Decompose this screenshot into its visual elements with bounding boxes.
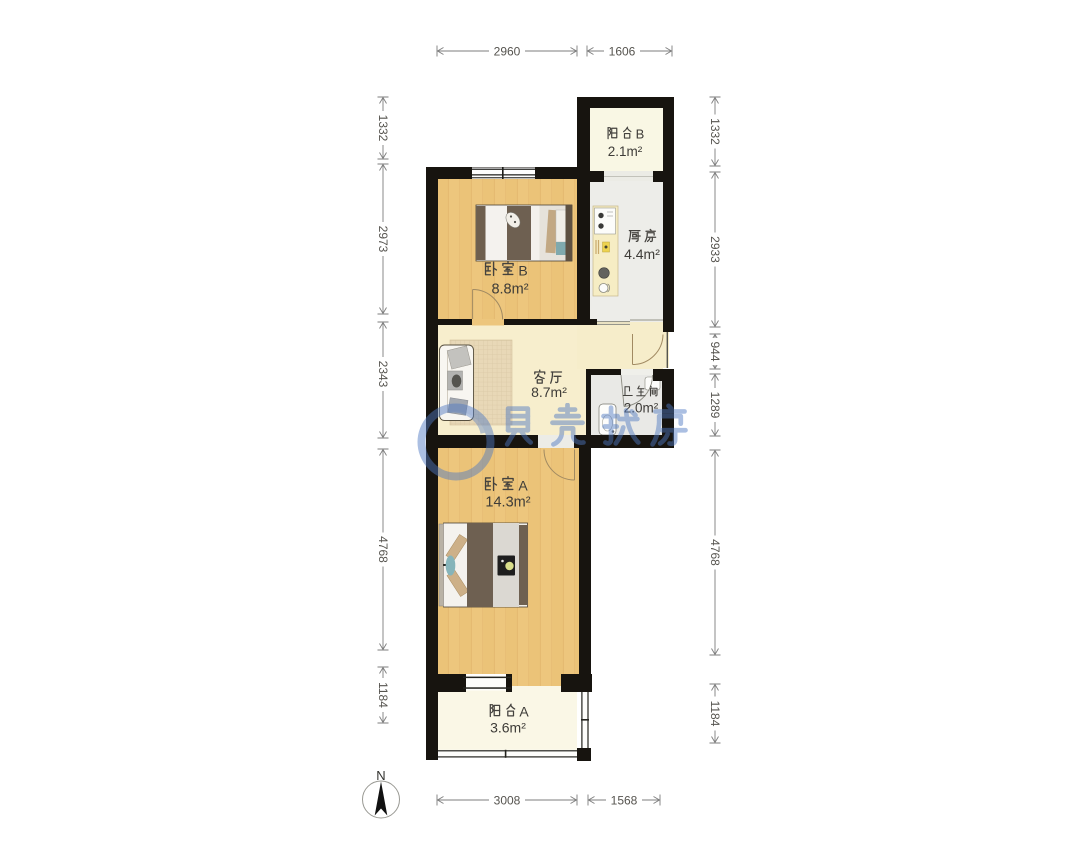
svg-text:944: 944 [708, 341, 722, 361]
svg-text:1332: 1332 [376, 115, 390, 142]
svg-text:A: A [519, 704, 529, 720]
svg-text:B: B [636, 127, 645, 142]
svg-text:B: B [518, 263, 527, 279]
svg-text:4.4m²: 4.4m² [624, 246, 660, 262]
svg-text:2343: 2343 [376, 361, 390, 388]
svg-text:1332: 1332 [708, 118, 722, 145]
svg-text:3.6m²: 3.6m² [490, 720, 526, 736]
svg-text:2.1m²: 2.1m² [608, 144, 643, 159]
svg-text:1606: 1606 [609, 44, 636, 58]
svg-text:8.8m²: 8.8m² [491, 282, 528, 298]
svg-text:A: A [518, 478, 528, 494]
svg-text:1184: 1184 [708, 701, 722, 727]
svg-text:1568: 1568 [611, 793, 638, 807]
svg-text:4768: 4768 [708, 539, 722, 566]
svg-text:2960: 2960 [494, 44, 521, 58]
svg-text:8.7m²: 8.7m² [531, 384, 567, 400]
svg-text:2933: 2933 [708, 236, 722, 263]
svg-text:4768: 4768 [376, 536, 390, 563]
svg-text:14.3m²: 14.3m² [485, 495, 530, 511]
svg-text:3008: 3008 [494, 793, 521, 807]
svg-text:2973: 2973 [376, 226, 390, 253]
svg-text:1289: 1289 [708, 392, 722, 419]
svg-text:1184: 1184 [376, 682, 390, 708]
svg-text:2.0m²: 2.0m² [624, 401, 659, 416]
